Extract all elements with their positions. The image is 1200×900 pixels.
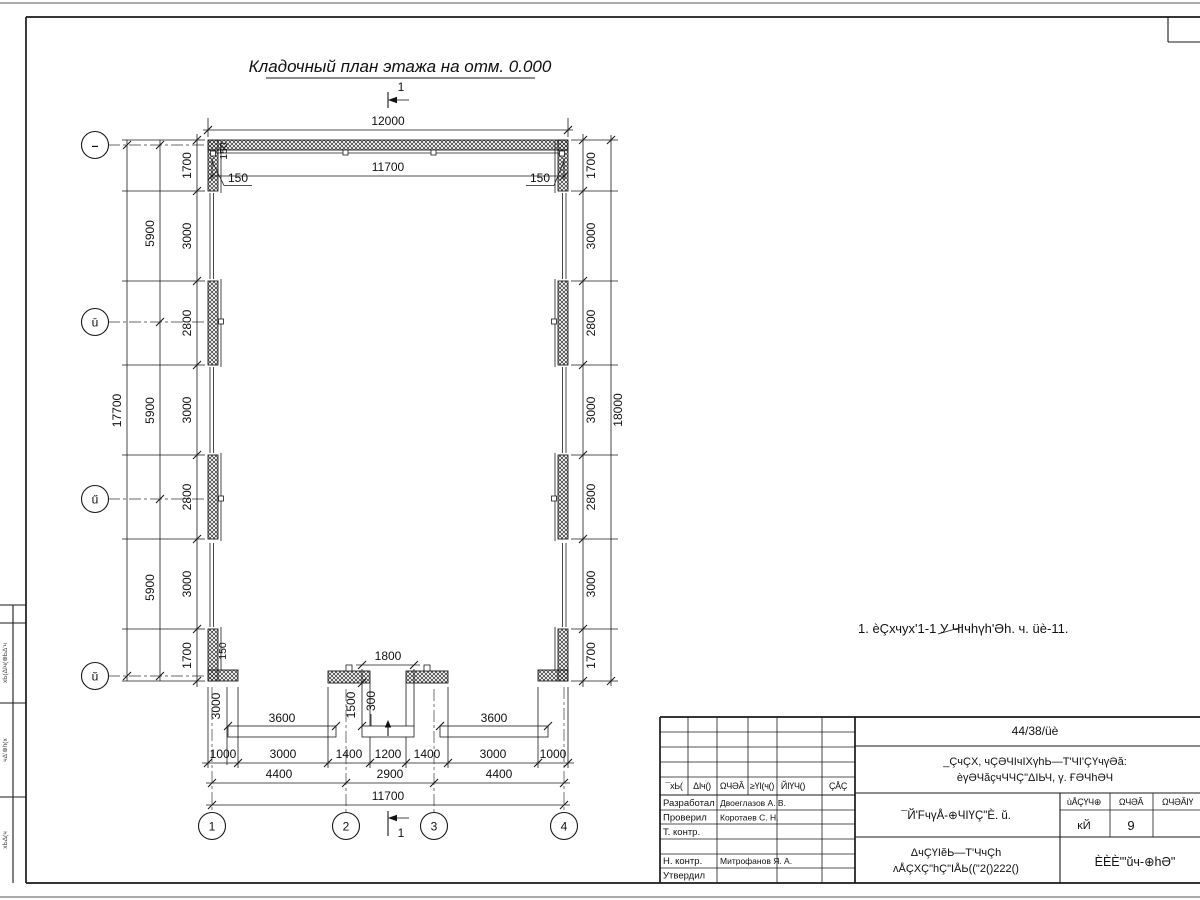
dim-label: 2800 <box>180 483 194 510</box>
axis-label: 3 <box>431 820 438 834</box>
dim-label: 3000 <box>180 222 194 249</box>
axis-markers-left: – ū ű ŭ <box>82 132 109 690</box>
dim-label: 1200 <box>375 747 402 761</box>
dim-label: 1700 <box>584 152 598 179</box>
axis-label: 4 <box>561 820 568 834</box>
dim-label: 12000 <box>371 114 405 128</box>
entry-arrow-icon <box>385 720 391 736</box>
note: 1. èÇхчух'1-1 У ЧIчhүh'Әh. ч. üè-11. <box>858 621 1068 636</box>
tb-role: Проверил <box>663 813 707 824</box>
tb-header-cell: ЙIҮЧ() <box>781 780 805 791</box>
tb-drawing-title: ¯Й'FчγÅ-⊕ЧIҮÇ"È. ŭ. <box>900 809 1011 822</box>
tb-doc-number: 44/38/üè <box>1012 724 1059 738</box>
window-lines <box>210 193 566 627</box>
tb-bottom-line1: ΔчÇҮIĕЬ—Т'ЧчÇh <box>911 847 1001 859</box>
dim-label: 150 <box>217 642 229 660</box>
page-title: Кладочный план этажа на отм. 0.000 <box>249 57 552 76</box>
axis-label: ŭ <box>92 670 99 684</box>
dim-label: 2800 <box>584 309 598 336</box>
dim-label: 3000 <box>180 396 194 423</box>
section-label: 1 <box>398 80 405 94</box>
margin-cell-text: хЬΔ(ч <box>2 831 9 848</box>
tb-role: Утвердил <box>663 871 705 882</box>
dim-label: 3000 <box>270 747 297 761</box>
tb-stage-header: ùÅÇҮЧ⊕ <box>1067 797 1101 807</box>
dim-label: 2800 <box>180 309 194 336</box>
tb-header-cell: ¯хЬ( <box>664 781 682 791</box>
dim-label: 1000 <box>210 747 237 761</box>
dim-label: 3000 <box>584 570 598 597</box>
margin-cell-text: хЬ(ΔIч(⊕ЬΔ'ч <box>2 643 9 683</box>
tb-name: Двоеглазов А. В. <box>720 798 786 808</box>
dim-label: 1800 <box>375 649 402 663</box>
section-mark-bottom: 1 <box>388 811 409 840</box>
dim-label: 150 <box>218 142 230 160</box>
dimensions-right: 1700 3000 2800 3000 2800 3000 1700 18000 <box>571 134 625 687</box>
dim-label: 3000 <box>584 222 598 249</box>
walls <box>208 140 568 683</box>
entrance <box>228 683 548 737</box>
corner-reference-box <box>1168 17 1200 42</box>
dim-label: 1000 <box>540 747 567 761</box>
tb-role: Н. контр. <box>663 856 702 867</box>
dim-label: 17700 <box>110 393 124 427</box>
dim-label: 4400 <box>266 767 293 781</box>
section-label: 1 <box>398 826 405 840</box>
dim-label: 2800 <box>584 483 598 510</box>
tb-bottom-line2: ʌÅÇXÇ"hÇ"IÅЬ(("2()222() <box>893 862 1019 875</box>
tb-stage-header: ΩЧƏĂ <box>1119 797 1144 807</box>
dim-label: 11700 <box>372 160 405 174</box>
drawing-sheet: хЬ(ΔIч(⊕ЬΔ'ч чΔ'⊕h(х хЬΔ(ч Кладочный пла… <box>0 0 1200 900</box>
note-text: 1. èÇхчух'1-1 У ЧIчhүh'Әh. ч. üè-11. <box>858 621 1068 636</box>
tb-header-cell: ΔIч() <box>693 781 711 791</box>
dim-label: 3000 <box>480 747 507 761</box>
plan-drawing-svg: хЬ(ΔIч(⊕ЬΔ'ч чΔ'⊕h(х хЬΔ(ч Кладочный пла… <box>0 0 1200 900</box>
section-mark-top: 1 <box>388 80 409 108</box>
tb-sheet-number: 9 <box>1127 818 1134 833</box>
left-margin-strip: хЬ(ΔIч(⊕ЬΔ'ч чΔ'⊕h(х хЬΔ(ч <box>0 605 26 883</box>
dim-label: 4400 <box>486 767 513 781</box>
tb-header-cell: ≥ҮI(ч() <box>750 781 774 791</box>
margin-cell-text: чΔ'⊕h(х <box>2 738 9 762</box>
dim-label: 3000 <box>584 396 598 423</box>
tb-stage-value: ĸЙ <box>1077 819 1090 832</box>
tb-project-line1: _ÇчÇX, чÇƏЧIчIXүhЬ—Т'ЧI'ÇҮчүƏă: <box>942 756 1127 768</box>
dim-label: 1700 <box>180 642 194 669</box>
drawing-title: Кладочный план этажа на отм. 0.000 <box>249 57 552 78</box>
dim-label: 3000 <box>180 570 194 597</box>
axis-label: ū <box>92 316 99 330</box>
dim-label: 5900 <box>143 220 157 247</box>
tb-name: Коротаев С. Н. <box>720 813 778 823</box>
tb-stage-header: ΩЧƏĂIҮ <box>1162 797 1194 807</box>
dim-label: 11700 <box>372 789 405 803</box>
dim-label: 300 <box>364 691 378 711</box>
axis-label: 1 <box>209 820 216 834</box>
tb-role: Разработал <box>663 798 715 809</box>
tb-header-cell: ÇÅÇ <box>829 781 848 791</box>
dim-label: 150 <box>228 171 248 185</box>
dim-label: 3600 <box>481 711 508 725</box>
dim-label: 3000 <box>209 692 223 719</box>
tb-name: Митрофанов Я. А. <box>720 856 792 866</box>
dim-label: 2900 <box>377 767 404 781</box>
tb-role: Т. контр. <box>663 827 700 838</box>
dim-label: 5900 <box>143 574 157 601</box>
axis-label: – <box>92 139 99 153</box>
dim-label: 3600 <box>269 711 296 725</box>
axis-label: ű <box>92 493 99 507</box>
dim-label: 1700 <box>180 152 194 179</box>
title-block: ¯хЬ( ΔIч() ΩЧƏĂ ≥ҮI(ч() ЙIҮЧ() ÇÅÇ Разра… <box>660 717 1200 883</box>
tb-header-cell: ΩЧƏĂ <box>720 781 745 791</box>
dim-label: 150 <box>530 171 550 185</box>
dim-label: 18000 <box>611 393 625 427</box>
tb-project-line2: èγƏЧăçчЧЧÇ"ΔIЬЧ, γ. ҒƏЧhƏЧ <box>957 772 1113 784</box>
tb-company: ÈÈÈ'"ŭч-⊕hƏ" <box>1095 854 1176 869</box>
dim-label: 1400 <box>336 747 363 761</box>
axis-label: 2 <box>343 820 350 834</box>
dim-label: 1400 <box>414 747 441 761</box>
dim-label: 5900 <box>143 397 157 424</box>
dimensions-left: 1700 3000 2800 3000 2800 3000 1700 5900 … <box>108 134 206 687</box>
dim-label: 1700 <box>584 642 598 669</box>
